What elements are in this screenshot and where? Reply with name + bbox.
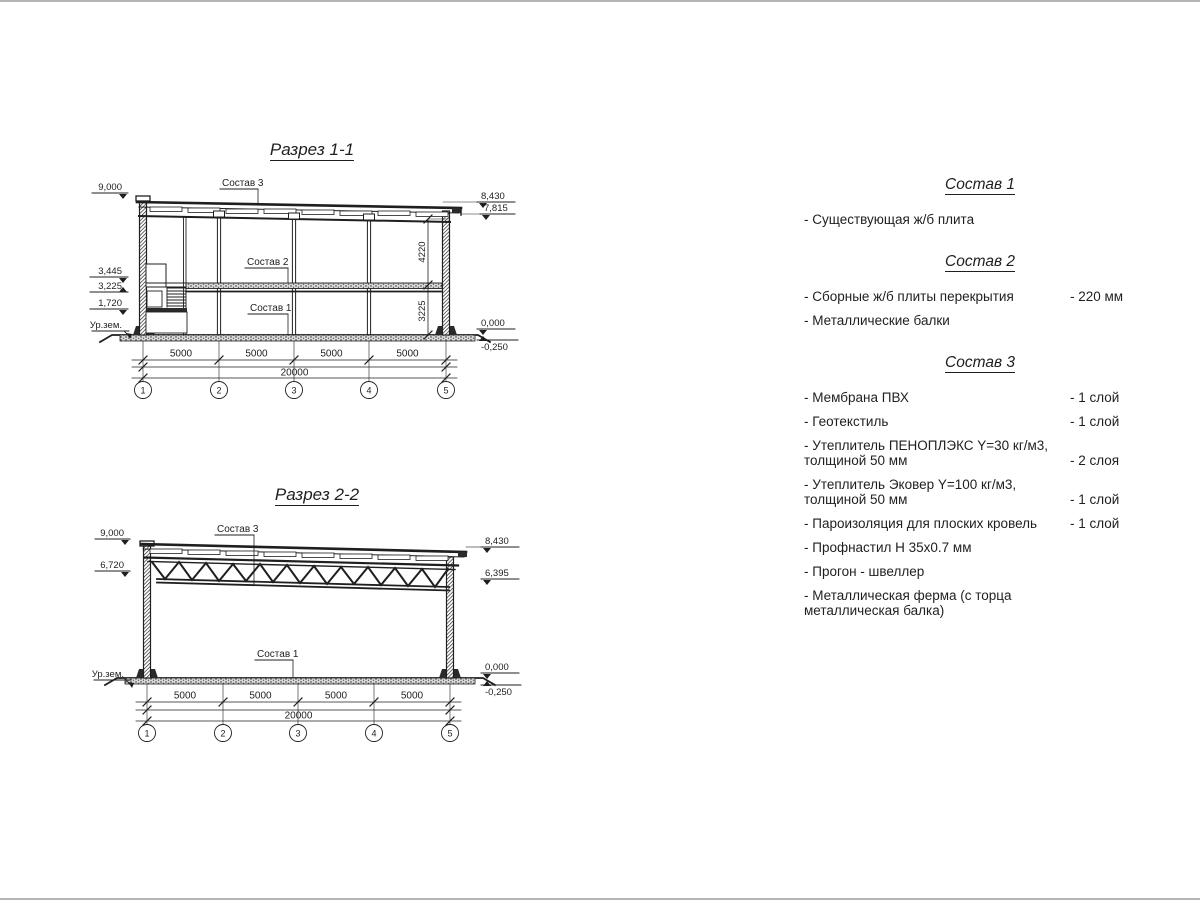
layer-label: Состав 3: [222, 178, 264, 189]
legend-item-value: - 1 слой: [1070, 492, 1158, 507]
span-dim: 5000: [174, 691, 197, 702]
axis-number: 4: [366, 386, 371, 396]
elevation-mark-value: 0,000: [481, 318, 505, 329]
legend-item: - Профнастил Н 35х0.7 мм: [798, 540, 1162, 555]
elevation-mark-value: 7,815: [484, 203, 508, 214]
legend-item: - Геотекстиль - 1 слой: [798, 414, 1162, 429]
ground-level-label: Ур.зем.: [90, 320, 122, 331]
legend-item-label: - Мембрана ПВХ: [804, 390, 1070, 405]
axis-number: 1: [144, 729, 149, 739]
height-dim: 3225: [417, 300, 428, 321]
legend-item-label: - Геотекстиль: [804, 414, 1070, 429]
span-dim: 5000: [325, 691, 348, 702]
elevation-mark-value: -0,250: [481, 342, 508, 353]
legend-item-value: - 1 слой: [1070, 390, 1158, 405]
elevation-mark-value: 1,720: [98, 298, 122, 309]
legend-item: - Пароизоляция для плоских кровель - 1 с…: [798, 516, 1162, 531]
span-dim: 5000: [396, 349, 419, 360]
legend-item-label: - Металлические балки: [804, 313, 950, 328]
axis-number: 1: [140, 386, 145, 396]
legend-item: - Металлическая ферма (с торца металличе…: [798, 588, 1162, 618]
drawing-sheet: Разрез 1-1 Разрез 2-2: [0, 0, 1200, 900]
elevation-mark-value: 0,000: [485, 662, 509, 673]
elevation-mark-value: 9,000: [100, 528, 124, 539]
axis-number: 2: [220, 729, 225, 739]
elevation-mark-value: 6,720: [100, 560, 124, 571]
total-dim: 20000: [281, 368, 309, 379]
span-dim: 5000: [320, 349, 343, 360]
legend-item: - Мембрана ПВХ - 1 слой: [798, 390, 1162, 405]
legend-item-value: - 1 слой: [1070, 516, 1158, 531]
legend-item: - Существующая ж/б плита: [798, 212, 1162, 227]
ground-level-label: Ур.зем.: [92, 669, 124, 680]
elevation-mark-value: 9,000: [98, 182, 122, 193]
layer-label: Состав 1: [250, 303, 292, 314]
axis-number: 2: [216, 386, 221, 396]
axis-number: 5: [447, 729, 452, 739]
legend-item: - Сборные ж/б плиты перекрытия - 220 мм: [798, 289, 1162, 304]
legend-item: - Прогон - швеллер: [798, 564, 1162, 579]
legend-item-label: - Прогон - швеллер: [804, 564, 924, 579]
axis-number: 4: [371, 729, 376, 739]
layer-label: Состав 1: [257, 649, 299, 660]
axis-number: 5: [443, 386, 448, 396]
legend-item-label: - Утеплитель ПЕНОПЛЭКС Y=30 кг/м3, толщи…: [804, 438, 1070, 468]
elevation-mark-value: 6,395: [485, 568, 509, 579]
legend-heading-sostav-1: Состав 1: [798, 176, 1162, 194]
legend-item-label: - Профнастил Н 35х0.7 мм: [804, 540, 971, 555]
span-dim: 5000: [249, 691, 272, 702]
total-dim: 20000: [285, 711, 313, 722]
legend-item: - Утеплитель ПЕНОПЛЭКС Y=30 кг/м3, толщи…: [798, 438, 1162, 468]
legend-item-value: - 2 слоя: [1070, 453, 1158, 468]
axis-number: 3: [291, 386, 296, 396]
legend-item-label: - Металлическая ферма (с торца металличе…: [804, 588, 1090, 618]
elevation-mark-value: 8,430: [485, 536, 509, 547]
legend-column: Состав 1 - Существующая ж/б плита Состав…: [798, 176, 1162, 627]
legend-item-label: - Утеплитель Эковер Y=100 кг/м3, толщино…: [804, 477, 1070, 507]
legend-item-label: - Сборные ж/б плиты перекрытия: [804, 289, 1070, 304]
legend-item-value: - 1 слой: [1070, 414, 1158, 429]
legend-item-label: - Пароизоляция для плоских кровель: [804, 516, 1070, 531]
layer-label: Состав 2: [247, 257, 289, 268]
axis-number: 3: [295, 729, 300, 739]
layer-label: Состав 3: [217, 524, 259, 535]
span-dim: 5000: [401, 691, 424, 702]
span-dim: 5000: [245, 349, 268, 360]
legend-item-value: - 220 мм: [1070, 289, 1158, 304]
legend-item: - Металлические балки: [798, 313, 1162, 328]
elevation-mark-value: 3,225: [98, 281, 122, 292]
elevation-mark-value: 8,430: [481, 191, 505, 202]
legend-heading-sostav-2: Состав 2: [798, 253, 1162, 271]
legend-item-label: - Существующая ж/б плита: [804, 212, 974, 227]
legend-heading-sostav-3: Состав 3: [798, 354, 1162, 372]
legend-item: - Утеплитель Эковер Y=100 кг/м3, толщино…: [798, 477, 1162, 507]
elevation-mark-value: -0,250: [485, 687, 512, 698]
span-dim: 5000: [170, 349, 193, 360]
height-dim: 4220: [417, 241, 428, 262]
elevation-mark-value: 3,445: [98, 266, 122, 277]
